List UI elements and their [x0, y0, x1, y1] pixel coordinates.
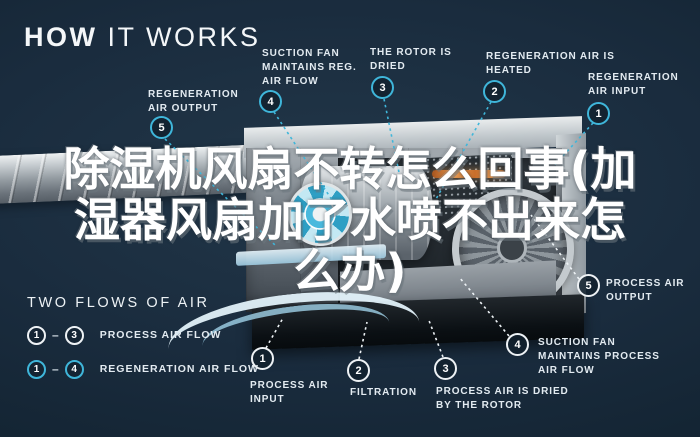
callout-label-process-input: PROCESS AIR INPUT	[250, 379, 342, 407]
legend-row-regen: 1 – 4 REGENERATION AIR FLOW	[27, 359, 259, 379]
legend-process-label: PROCESS AIR FLOW	[100, 329, 222, 341]
legend-process-from-marker: 1	[27, 326, 46, 345]
callout-marker-process-3: 3	[434, 357, 457, 380]
legend: TWO FLOWS OF AIR 1 – 3 PROCESS AIR FLOW …	[27, 295, 259, 379]
callout-label-filtration: FILTRATION	[350, 386, 450, 400]
callout-label-suction-fan-process: SUCTION FAN MAINTAINS PROCESS AIR FLOW	[538, 336, 678, 377]
legend-regen-label: REGENERATION AIR FLOW	[100, 363, 259, 375]
callout-marker-regen-1: 1	[587, 102, 610, 125]
legend-process-to-marker: 3	[65, 326, 84, 345]
callout-marker-regen-2: 2	[483, 80, 506, 103]
callout-label-rotor-dried: THE ROTOR IS DRIED	[370, 46, 456, 74]
overlay-title: 除湿机风扇不转怎么回事(加 湿器风扇加了水喷不出来怎 么办)	[0, 144, 700, 297]
legend-dash: –	[52, 328, 59, 342]
page-title-rest: IT WORKS	[97, 22, 260, 52]
legend-regen-to-marker: 4	[65, 360, 84, 379]
legend-heading: TWO FLOWS OF AIR	[27, 295, 259, 311]
callout-marker-regen-3: 3	[371, 76, 394, 99]
callout-label-regeneration-air-output: REGENERATION AIR OUTPUT	[148, 88, 253, 116]
callout-marker-process-4: 4	[506, 333, 529, 356]
dehumidifier-infographic: HOW IT WORKS REGENERATION AIR OUTPUT 5 S…	[0, 0, 700, 437]
page-title-bold: HOW	[24, 22, 97, 52]
legend-row-process: 1 – 3 PROCESS AIR FLOW	[27, 325, 259, 345]
callout-marker-process-2: 2	[347, 359, 370, 382]
callout-marker-regen-5: 5	[150, 116, 173, 139]
callout-label-process-dried: PROCESS AIR IS DRIED BY THE ROTOR	[436, 385, 586, 413]
overlay-title-line1: 除湿机风扇不转怎么回事(加	[0, 144, 700, 195]
page-title: HOW IT WORKS	[24, 22, 261, 53]
overlay-title-line3: 么办)	[0, 246, 700, 297]
callout-label-suction-fan-reg: SUCTION FAN MAINTAINS REG. AIR FLOW	[262, 47, 367, 88]
legend-regen-from-marker: 1	[27, 360, 46, 379]
callout-label-regen-input: REGENERATION AIR INPUT	[588, 71, 698, 99]
callout-marker-regen-4: 4	[259, 90, 282, 113]
overlay-title-line2: 湿器风扇加了水喷不出来怎	[0, 195, 700, 246]
legend-dash: –	[52, 362, 59, 376]
